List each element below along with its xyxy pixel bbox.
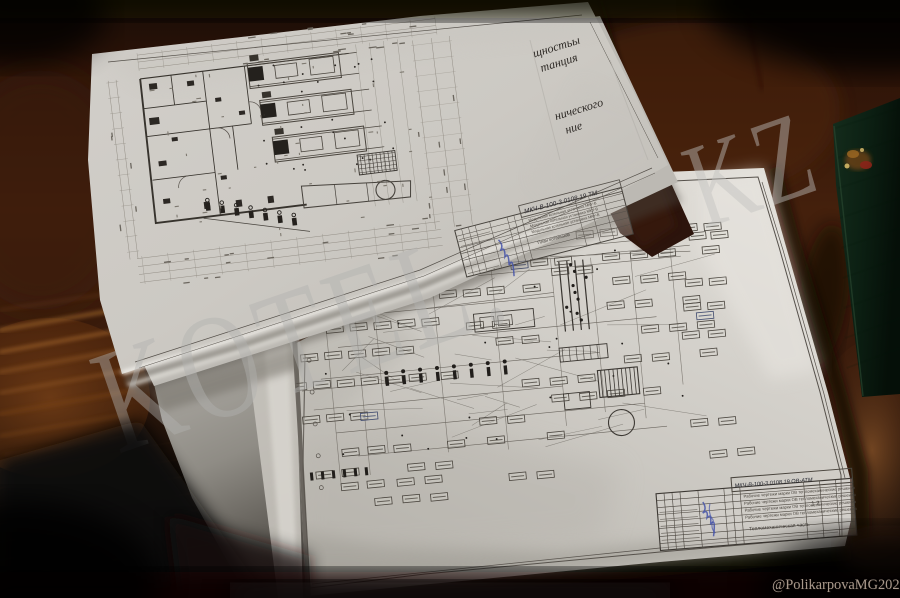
svg-text:1 2: 1 2 (811, 501, 820, 508)
svg-text:@PolikarpovaMG2020: @PolikarpovaMG2020 (772, 577, 900, 593)
